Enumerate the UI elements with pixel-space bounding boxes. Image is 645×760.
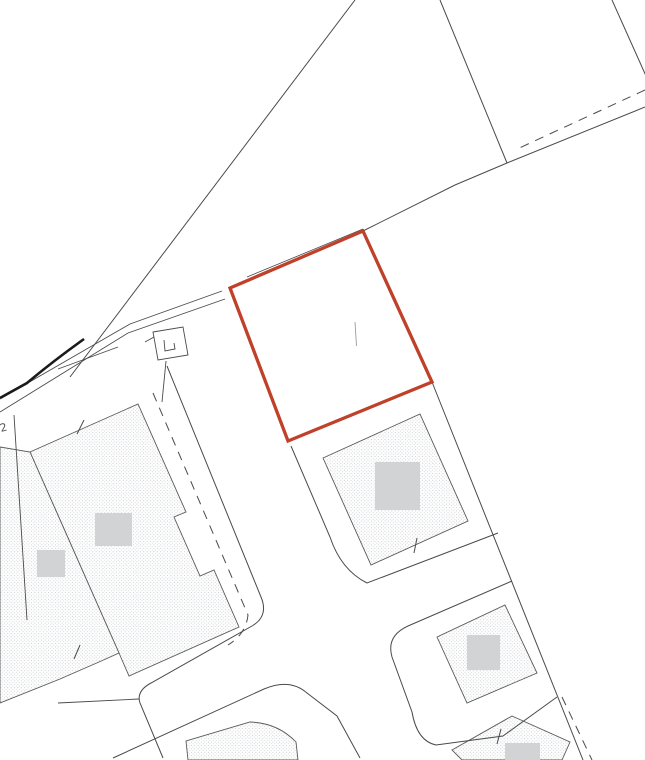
site-plan: 2S — [0, 0, 645, 760]
highlight-plot-inner-mark — [355, 322, 357, 346]
roof-square-bottom-right — [505, 743, 540, 760]
roof-square-southeast — [467, 635, 500, 670]
road-edge-southwest — [58, 699, 139, 703]
highlighted-plot-boundary[interactable] — [230, 231, 432, 441]
roof-square-center — [375, 462, 420, 510]
buildings-layer — [0, 404, 570, 760]
outbuilding-stem — [162, 361, 166, 402]
outbuilding-arrow-mark — [145, 337, 154, 342]
roof-square-west-2 — [37, 550, 65, 577]
plot-boundary-east-column — [432, 382, 583, 760]
kerb-thick-line — [0, 339, 84, 398]
building-bottom-center — [186, 722, 298, 760]
site-boundary-along-plot-edge — [247, 229, 363, 277]
overlay-boundary-dashed-top — [515, 90, 645, 150]
outbuilding-outline — [153, 327, 188, 360]
site-plan-drawing: 2S — [0, 0, 645, 760]
highlight-layer — [230, 231, 432, 441]
outbuilding-inner-mark — [164, 340, 175, 351]
track-edge-lower — [0, 299, 225, 412]
field-boundary-diagonal — [70, 0, 355, 377]
field-boundary-northeast — [612, 0, 645, 76]
site-boundary-main — [363, 107, 645, 231]
track-edge-upper — [0, 291, 222, 399]
roof-square-west-1 — [95, 513, 132, 546]
partial-label-2: 2 — [0, 421, 9, 435]
field-boundary-north — [440, 0, 507, 163]
